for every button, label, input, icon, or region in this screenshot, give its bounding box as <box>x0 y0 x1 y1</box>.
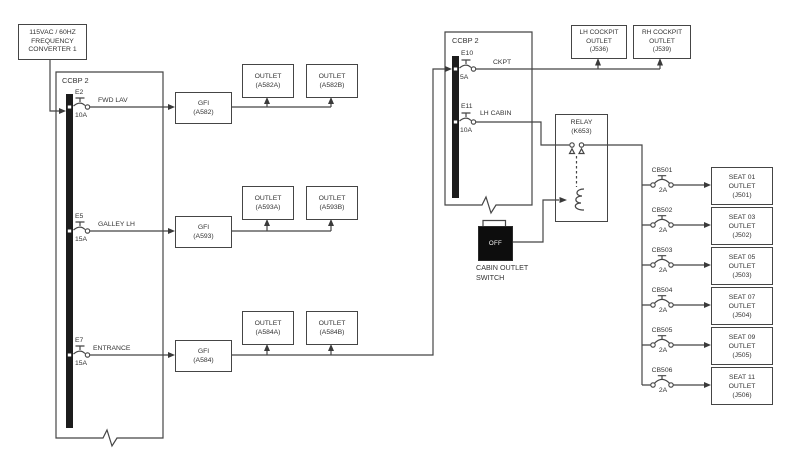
ccbp2-left-bus <box>66 94 73 428</box>
outlet-a584a-box: OUTLET (A584A) <box>242 311 294 345</box>
outlet-a593a-box: OUTLET (A593A) <box>242 186 294 220</box>
cb503-label: CB503 <box>640 247 684 255</box>
breaker-e5-rating: 15A <box>75 236 87 244</box>
outlet-a582a-box: OUTLET (A582A) <box>242 64 294 98</box>
breaker-e7-label: E7 <box>75 337 83 345</box>
relay-k653-box: RELAY (K653) <box>555 114 608 222</box>
circuit-label-fwd-lav: FWD LAV <box>98 97 128 105</box>
cabin-outlet-switch: OFF <box>478 226 513 261</box>
circuit-label-lh-cabin: LH CABIN <box>480 110 511 118</box>
cb504-rating: 2A <box>652 307 674 315</box>
cb506-label: CB506 <box>640 367 684 375</box>
switch-state-label: OFF <box>489 240 502 247</box>
cb501-label: CB501 <box>640 167 684 175</box>
frequency-converter-box: 115VAC / 60HZ FREQUENCY CONVERTER 1 <box>18 24 87 60</box>
cb503-rating: 2A <box>652 267 674 275</box>
gfi-a582-box: GFI (A582) <box>175 92 232 124</box>
ccbp2-right-bus <box>452 56 459 198</box>
cb505-label: CB505 <box>640 327 684 335</box>
gfi-a593-box: GFI (A593) <box>175 216 232 248</box>
cb504-label: CB504 <box>640 287 684 295</box>
cb501-rating: 2A <box>652 187 674 195</box>
outlet-a593b-box: OUTLET (A593B) <box>306 186 358 220</box>
breaker-e2-rating: 10A <box>75 112 87 120</box>
circuit-label-galley-lh: GALLEY LH <box>98 221 135 229</box>
cb505-rating: 2A <box>652 347 674 355</box>
cb502-label: CB502 <box>640 207 684 215</box>
cabin-outlet-switch-label: CABIN OUTLET SWITCH <box>476 263 556 283</box>
outlet-a584b-box: OUTLET (A584B) <box>306 311 358 345</box>
cb506-rating: 2A <box>652 387 674 395</box>
bus-bars <box>66 56 459 428</box>
ccbp2-right-title: CCBP 2 <box>452 36 479 45</box>
breaker-e2-label: E2 <box>75 89 83 97</box>
circuit-label-entrance: ENTRANCE <box>93 345 130 353</box>
gfi-a584-box: GFI (A584) <box>175 340 232 372</box>
breaker-e10-rating: 5A <box>460 74 468 82</box>
cockpit-outlet-j539-box: RH COCKPIT OUTLET (J539) <box>633 25 691 59</box>
circuit-label-ckpt: CKPT <box>493 59 511 67</box>
outlet-a582b-box: OUTLET (A582B) <box>306 64 358 98</box>
seat-outlet-j504-box: SEAT 07 OUTLET (J504) <box>711 287 773 325</box>
seat-outlet-j505-box: SEAT 09 OUTLET (J505) <box>711 327 773 365</box>
cockpit-outlet-j536-box: LH COCKPIT OUTLET (J536) <box>571 25 627 59</box>
seat-outlet-j501-box: SEAT 01 OUTLET (J501) <box>711 167 773 205</box>
breaker-e11-label: E11 <box>461 103 473 111</box>
seat-outlet-j506-box: SEAT 11 OUTLET (J506) <box>711 367 773 405</box>
cb502-rating: 2A <box>652 227 674 235</box>
wire-lines <box>50 32 704 446</box>
breaker-e5-label: E5 <box>75 213 83 221</box>
wiring-diagram: 115VAC / 60HZ FREQUENCY CONVERTER 1 CCBP… <box>0 0 800 452</box>
seat-outlet-j502-box: SEAT 03 OUTLET (J502) <box>711 207 773 245</box>
seat-outlet-j503-box: SEAT 05 OUTLET (J503) <box>711 247 773 285</box>
breaker-e7-rating: 15A <box>75 360 87 368</box>
breaker-e11-rating: 10A <box>460 127 472 135</box>
breaker-e10-label: E10 <box>461 50 473 58</box>
ccbp2-left-title: CCBP 2 <box>62 76 89 85</box>
